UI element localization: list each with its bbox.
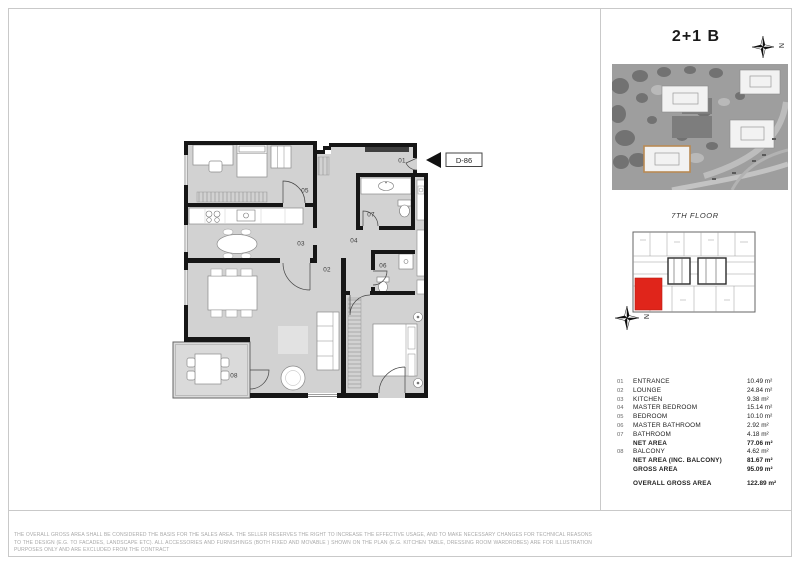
legal-disclaimer: THE OVERALL GROSS AREA SHALL BE CONSIDER… — [14, 532, 592, 555]
legend-room-name: MASTER BATHROOM — [633, 422, 747, 431]
north-compass-keyplan: N — [610, 304, 656, 334]
legend-room-area: 10.10 m² — [747, 413, 789, 422]
legend-room-number: 01 — [617, 378, 633, 387]
room-label-03: 03 — [297, 241, 305, 248]
north-compass-top: N — [748, 33, 792, 63]
room-label-02: 02 — [323, 267, 331, 274]
compass-star-icon — [610, 304, 656, 334]
room-label-06: 06 — [379, 263, 387, 270]
legend-row: 01ENTRANCE10.49 m² — [617, 378, 789, 387]
legend-room-area: 77.06 m² — [747, 440, 789, 449]
legend-row: 07BATHROOM4.18 m² — [617, 431, 789, 440]
legend-room-name: NET AREA (INC. BALCONY) — [633, 457, 747, 466]
compass-north-label: N — [777, 43, 784, 48]
floor-level-label: 7TH FLOOR — [600, 211, 790, 220]
legend-room-name: ENTRANCE — [633, 378, 747, 387]
legend-room-number: 06 — [617, 422, 633, 431]
site-aerial-image — [612, 64, 788, 190]
footer-divider-horizontal — [8, 510, 792, 511]
brochure-page: 2+1 B N — [0, 0, 800, 565]
legend-room-area: 95.09 m² — [747, 466, 789, 475]
legend-room-name: BALCONY — [633, 448, 747, 457]
legend-row: GROSS AREA95.09 m² — [617, 466, 789, 475]
legend-row: 04MASTER BEDROOM15.14 m² — [617, 404, 789, 413]
panel-divider-vertical — [600, 8, 601, 511]
room-label-07: 07 — [367, 212, 375, 219]
compass-north-label: N — [642, 314, 649, 319]
legend-room-name: OVERALL GROSS AREA — [633, 480, 747, 489]
legend-room-area: 122.89 m² — [747, 480, 789, 489]
legend-room-area: 9.38 m² — [747, 396, 789, 405]
entrance-arrow-icon — [426, 152, 441, 168]
unit-floor-plan: D-86 01 02 03 04 05 06 07 08 — [165, 130, 485, 410]
legend-row: NET AREA77.06 m² — [617, 440, 789, 449]
legend-room-number — [617, 457, 633, 466]
area-legend: 01ENTRANCE10.49 m²02LOUNGE24.84 m²03KITC… — [617, 378, 789, 489]
legend-row: 03KITCHEN9.38 m² — [617, 396, 789, 405]
legend-room-number — [617, 466, 633, 475]
legend-room-name: LOUNGE — [633, 387, 747, 396]
entrance-shelf — [365, 147, 409, 152]
legend-room-name: GROSS AREA — [633, 466, 747, 475]
highlighted-building — [644, 146, 690, 172]
legend-room-number: 07 — [617, 431, 633, 440]
legend-row: 05BEDROOM10.10 m² — [617, 413, 789, 422]
radiator-strip — [197, 192, 267, 202]
legend-room-area: 24.84 m² — [747, 387, 789, 396]
legend-row: 06MASTER BATHROOM2.92 m² — [617, 422, 789, 431]
legend-room-area: 2.92 m² — [747, 422, 789, 431]
legend-row: NET AREA (INC. BALCONY)81.67 m² — [617, 457, 789, 466]
legend-room-number — [617, 480, 633, 489]
legend-room-area: 15.14 m² — [747, 404, 789, 413]
compass-star-icon — [748, 33, 792, 63]
room-label-04: 04 — [350, 238, 358, 245]
room-label-01: 01 — [398, 158, 406, 165]
legend-room-name: BATHROOM — [633, 431, 747, 440]
legend-room-name: NET AREA — [633, 440, 747, 449]
legend-room-name: BEDROOM — [633, 413, 747, 422]
legend-row: 08BALCONY4.62 m² — [617, 448, 789, 457]
legend-room-area: 10.49 m² — [747, 378, 789, 387]
legend-room-number: 02 — [617, 387, 633, 396]
legend-room-number: 08 — [617, 448, 633, 457]
room-label-05: 05 — [301, 188, 309, 195]
legend-room-area: 4.62 m² — [747, 448, 789, 457]
legend-room-area: 4.18 m² — [747, 431, 789, 440]
legend-rows: 01ENTRANCE10.49 m²02LOUNGE24.84 m²03KITC… — [617, 378, 789, 489]
legend-room-name: MASTER BEDROOM — [633, 404, 747, 413]
legend-room-name: KITCHEN — [633, 396, 747, 405]
legend-room-area: 81.67 m² — [747, 457, 789, 466]
legend-row: 02LOUNGE24.84 m² — [617, 387, 789, 396]
room-label-08: 08 — [230, 373, 238, 380]
legend-room-number — [617, 440, 633, 449]
unit-tag-label: D-86 — [456, 156, 472, 165]
legend-room-number: 04 — [617, 404, 633, 413]
legend-room-number: 03 — [617, 396, 633, 405]
legend-room-number: 05 — [617, 413, 633, 422]
legend-row: OVERALL GROSS AREA122.89 m² — [617, 480, 789, 489]
